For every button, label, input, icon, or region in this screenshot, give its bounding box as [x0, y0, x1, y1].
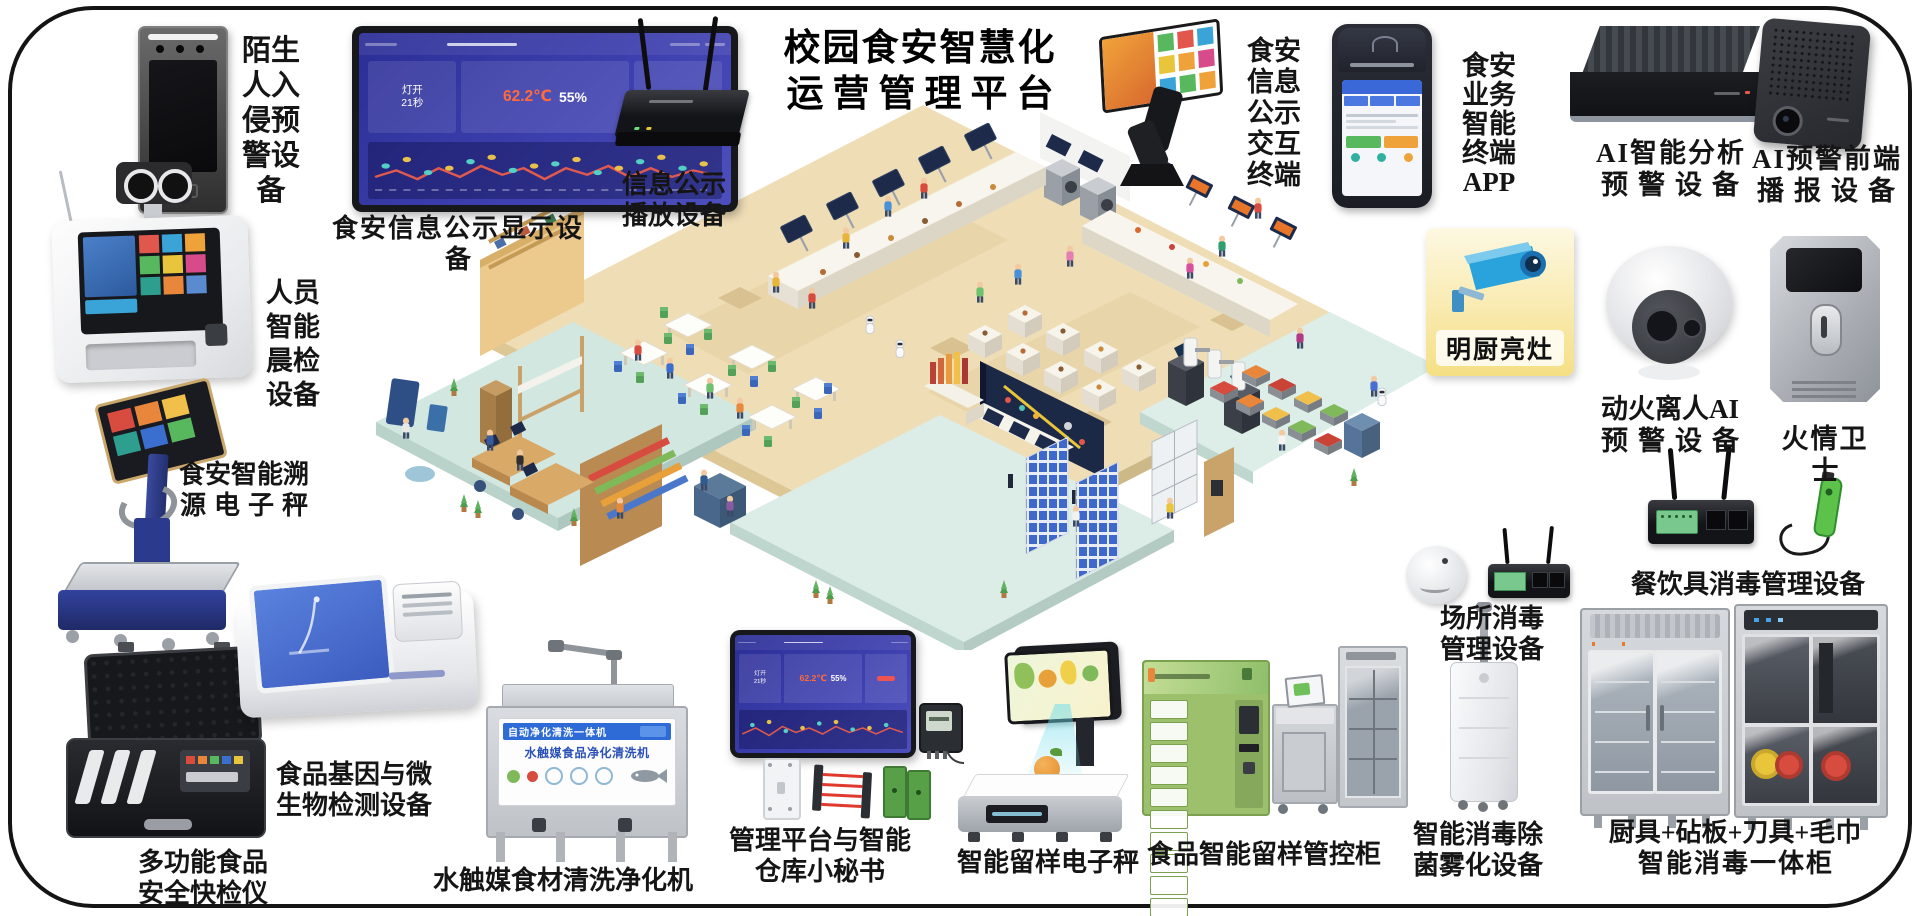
speaker-grille: [1767, 26, 1859, 105]
mgmt-platform-monitor: 灯开21秒 62.2℃55%: [730, 630, 916, 758]
case-lid: [84, 646, 263, 753]
ir-window: [1786, 248, 1862, 292]
mingchu-liangzao-card: 明厨亮灶: [1426, 228, 1574, 376]
washer-body: 自动净化清洗一体机 水触媒食品净化清洗机: [486, 706, 688, 838]
printer-unit: [392, 581, 463, 642]
dashboard-screen-small: 灯开21秒 62.2℃55%: [735, 635, 911, 753]
title-line1: 校园食安智慧化: [778, 26, 1062, 72]
device-body: [51, 215, 253, 384]
camera-dots: [156, 45, 164, 53]
ai-broadcast-speaker: [1753, 18, 1871, 151]
camera-strip: [148, 34, 218, 40]
smart-sample-scale: [958, 644, 1136, 842]
thermal-dome-camera: [1598, 246, 1740, 386]
washer-panel: 自动净化清洗一体机 水触媒食品净化清洗机: [498, 718, 676, 806]
temp-humidity-card: 62.2℃ 55%: [461, 61, 628, 133]
pos-screen: [1342, 80, 1422, 196]
label-trace-scale: 食安智能溯 源电子秤: [166, 460, 322, 521]
antenna-icon: [638, 18, 652, 90]
case-base: [66, 738, 266, 838]
status-card: 灯开 21秒: [368, 61, 456, 133]
label-morning-check: 人员智能晨检设备: [262, 276, 324, 412]
label-gene-analyzer: 食品基因与微 生物检测设备: [266, 760, 442, 821]
label-sample-cabinet: 食品智能留样管控柜: [1140, 840, 1388, 871]
label-info-player: 信息公示 播放设备: [612, 170, 736, 231]
fire-guard-device: [1770, 236, 1880, 402]
label-venue-disinfect: 场所消毒 管理设备: [1432, 604, 1552, 665]
label-kiosk: 食安信息公示交互终端: [1243, 36, 1305, 191]
camera-lens-icon: [1771, 105, 1804, 138]
venue-disinfect-dome: [1406, 546, 1466, 604]
label-tableware-disinfect: 餐饮具消毒管理设备: [1626, 570, 1870, 601]
label-sample-scale: 智能留样电子秤: [952, 848, 1144, 879]
cctv-camera-icon: [1440, 238, 1560, 324]
label-washer: 水触媒食材清洗净化机: [432, 866, 694, 897]
disinfect-cabinet-double: [1580, 608, 1730, 816]
label-display-device: 食安信息公示显示设备: [330, 214, 586, 275]
pcb-boards: [883, 764, 931, 818]
mingchu-text: 明厨亮灶: [1446, 330, 1554, 366]
label-stranger-alarm: 陌生人入侵预警设备: [238, 34, 304, 209]
check-screen: [78, 228, 223, 335]
label-fire-ai: 动火离人AI 预警设备: [1596, 394, 1744, 458]
label-mgmt-platform: 管理平台与智能 仓库小秘书: [724, 826, 916, 887]
green-sample-locker: [1142, 660, 1270, 816]
label-atomizer: 智能消毒除 菌雾化设备: [1406, 820, 1550, 881]
sample-station: [1272, 646, 1408, 816]
label-fire-guard: 火情卫士: [1770, 424, 1880, 488]
disinfect-cabinet-quad: [1734, 604, 1888, 818]
relay-module: [763, 758, 801, 820]
title-line2: 运营管理平台: [778, 72, 1071, 118]
ai-analysis-box: [1568, 20, 1770, 138]
poster-canvas: 校园食安智慧化 运营管理平台: [0, 0, 1920, 916]
morning-check-device: [50, 162, 255, 402]
nfc-icon: [1372, 36, 1398, 52]
analyzer-screen: [248, 574, 395, 694]
label-ai-broadcast: AI预警前端 播报设备: [1744, 144, 1908, 208]
washer-name-text: 水触媒食品净化清洗机: [499, 744, 675, 761]
label-pos-app: 食安业务智能终端APP: [1456, 52, 1522, 197]
laser-barrier: [812, 765, 873, 820]
mingchu-text-band: 明厨亮灶: [1436, 330, 1564, 366]
kiosk-base: [1120, 164, 1184, 186]
terminal-screen: [149, 60, 217, 172]
info-player-router: [616, 18, 748, 164]
label-ai-analysis: AI智能分析 预警设备: [1572, 138, 1768, 202]
label-combo-cabinet: 厨具+砧板+刀具+毛巾 智能消毒一体柜: [1596, 818, 1874, 879]
handheld-pos-terminal: [1332, 24, 1432, 208]
interactive-kiosk: [1094, 26, 1224, 192]
label-quick-test: 多功能食品 安全快检仪: [122, 848, 284, 909]
gene-analyzer: [234, 572, 490, 745]
iot-sensor: [919, 703, 961, 763]
humidity-value: 55%: [559, 89, 587, 105]
washer-strip-text: 自动净化清洗一体机: [508, 724, 607, 739]
temperature-value: 62.2℃: [503, 87, 552, 106]
tableware-disinfect-router: [1648, 448, 1758, 566]
venue-disinfect-router: [1488, 528, 1574, 608]
trace-floor-scale: [54, 390, 252, 656]
food-washer-machine: 自动净化清洗一体机 水触媒食品净化清洗机: [478, 640, 690, 868]
robot-eyes-head: [116, 162, 192, 204]
antenna-icon: [703, 16, 719, 92]
page-title: 校园食安智慧化 运营管理平台: [778, 26, 1062, 118]
printer-top: [1338, 28, 1426, 72]
